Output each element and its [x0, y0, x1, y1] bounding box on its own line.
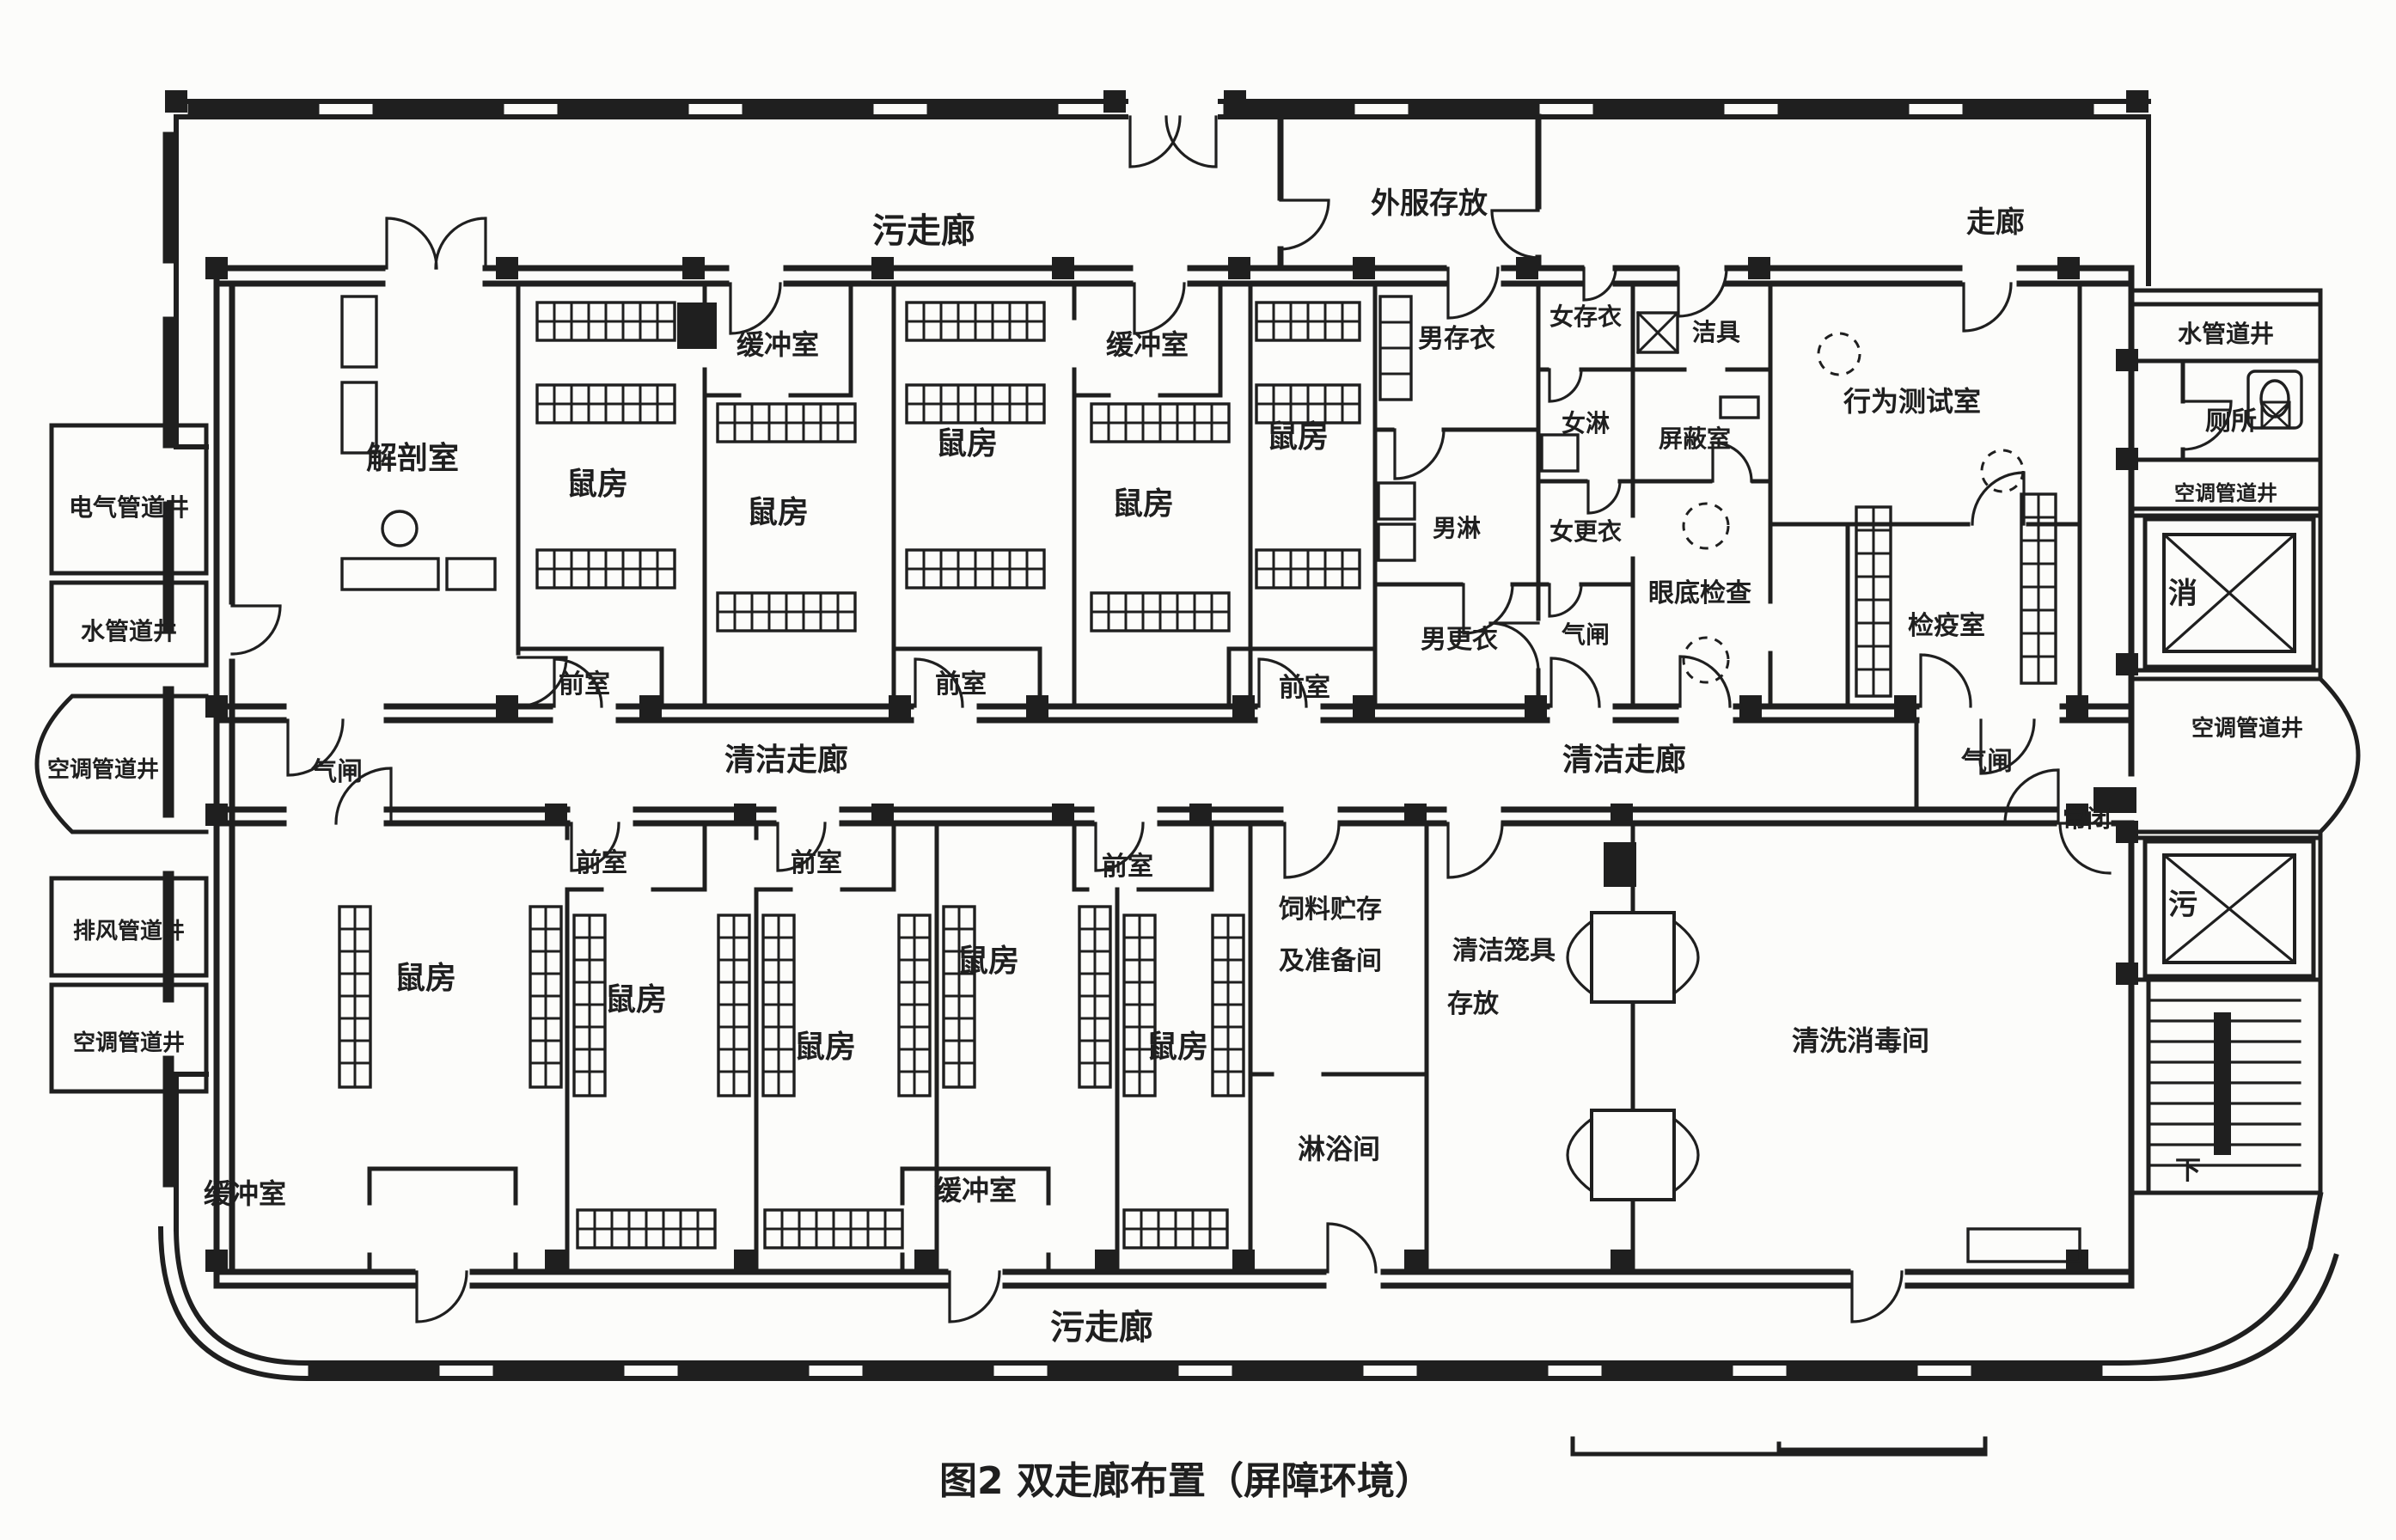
- label-clean-corridor-left: 清洁走廊: [724, 742, 848, 778]
- label-ac-shaft-right-1: 空调管道井: [2174, 481, 2277, 505]
- label-ac-shaft-bump-left: 空调管道井: [47, 756, 159, 783]
- label-mouse-room: 鼠房: [566, 467, 628, 502]
- label-stair-down: 下: [2175, 1156, 2201, 1186]
- label-anteroom: 前室: [935, 669, 987, 700]
- label-mouse-room: 鼠房: [1267, 419, 1329, 455]
- cage-racks: [339, 296, 2056, 1248]
- label-shower-room: 淋浴间: [1298, 1133, 1380, 1165]
- figure-caption: 图2 双走廊布置（屏障环境）: [939, 1459, 1433, 1503]
- label-men-changing: 男更衣: [1421, 625, 1498, 655]
- stair-handrail: [2214, 1012, 2231, 1155]
- label-dissection-room: 解剖室: [366, 441, 459, 476]
- label-women-clothes: 女存衣: [1549, 302, 1622, 331]
- label-toilet: 厕所: [2205, 406, 2257, 437]
- label-water-shaft-left: 水管道井: [81, 617, 177, 645]
- label-buffer-room: 缓冲室: [737, 328, 819, 361]
- label-men-clothes: 男存衣: [1418, 324, 1495, 354]
- floor-plan-figure: 污走廊 污走廊 外服存放 走廊 解剖室 鼠房 鼠房 鼠房 鼠房 鼠房 缓冲室 缓…: [0, 0, 2396, 1540]
- wash-room-bench: [1968, 1229, 2080, 1262]
- room-labels: 污走廊 污走廊 外服存放 走廊 解剖室 鼠房 鼠房 鼠房 鼠房 鼠房 缓冲室 缓…: [204, 186, 2111, 1347]
- staircase: [2152, 1000, 2300, 1165]
- label-exhaust-shaft: 排风管道井: [73, 918, 185, 944]
- exterior-wall-hatch: [168, 109, 2140, 1371]
- label-elevator-dirty: 污: [2168, 888, 2197, 922]
- label-ac-shaft-right-bump: 空调管道井: [2191, 715, 2303, 742]
- label-men-shower: 男淋: [1433, 514, 1481, 542]
- label-mouse-room: 鼠房: [605, 982, 667, 1017]
- label-shielded-room: 屏蔽室: [1659, 425, 1731, 453]
- label-clean-cage-2: 存放: [1447, 989, 1500, 1019]
- label-mouse-room: 鼠房: [1112, 486, 1174, 522]
- label-clean-cage-1: 清洁笼具: [1452, 936, 1556, 966]
- label-mouse-room: 鼠房: [1146, 1030, 1208, 1065]
- label-anteroom: 前室: [1102, 852, 1153, 882]
- label-mouse-room: 鼠房: [394, 961, 456, 996]
- label-quarantine-room: 检疫室: [1908, 611, 1985, 641]
- label-dirty-corridor-bottom: 污走廊: [1050, 1308, 1153, 1347]
- label-dirty-corridor-top: 污走廊: [872, 211, 975, 251]
- label-buffer-room: 缓冲室: [204, 1177, 286, 1210]
- janitor-sink-icon: [1638, 313, 1678, 352]
- label-anteroom: 前室: [1279, 673, 1330, 703]
- label-anteroom: 前室: [576, 848, 627, 878]
- label-women-changing: 女更衣: [1549, 517, 1622, 546]
- label-mouse-room: 鼠房: [747, 495, 809, 530]
- label-airlock-right: 气闸: [1961, 747, 2013, 777]
- label-women-shower: 女淋: [1562, 409, 1610, 437]
- label-electrical-shaft: 电气管道井: [69, 493, 189, 522]
- label-normally-closed: 常闭: [2063, 804, 2111, 833]
- label-mouse-room: 鼠房: [936, 426, 998, 461]
- label-buffer-room: 缓冲室: [1106, 328, 1189, 361]
- label-ac-shaft-left-2: 空调管道井: [73, 1030, 185, 1056]
- label-fundus-exam: 眼底检查: [1648, 578, 1751, 608]
- label-cleaning-tools: 洁具: [1692, 318, 1740, 346]
- walls-clean-corridor: [217, 706, 2131, 823]
- label-corridor-top-right: 走廊: [1966, 205, 2025, 240]
- label-outer-clothes-storage: 外服存放: [1371, 186, 1488, 221]
- label-feed-storage-1: 饲料贮存: [1278, 895, 1382, 925]
- label-behavior-test-room: 行为测试室: [1843, 385, 1981, 418]
- floor-plan-canvas: 污走廊 污走廊 外服存放 走廊 解剖室 鼠房 鼠房 鼠房 鼠房 鼠房 缓冲室 缓…: [0, 0, 2396, 1540]
- label-anteroom: 前室: [791, 848, 842, 878]
- label-elevator-disinfection: 消: [2168, 577, 2197, 611]
- label-wash-disinfection: 清洗消毒间: [1792, 1024, 1929, 1057]
- walls-north-rooms: [518, 284, 2080, 810]
- label-airlock-mid: 气闸: [1561, 620, 1610, 649]
- label-airlock-left: 气闸: [311, 757, 363, 787]
- label-buffer-room: 缓冲室: [934, 1174, 1017, 1207]
- label-mouse-room: 鼠房: [794, 1030, 856, 1065]
- label-anteroom: 前室: [559, 669, 610, 700]
- label-water-shaft-right: 水管道井: [2178, 320, 2274, 348]
- label-feed-storage-2: 及准备间: [1279, 946, 1382, 976]
- label-mouse-room: 鼠房: [957, 944, 1019, 979]
- label-clean-corridor-right: 清洁走廊: [1562, 742, 1686, 778]
- scale-bar: [1573, 1439, 1985, 1454]
